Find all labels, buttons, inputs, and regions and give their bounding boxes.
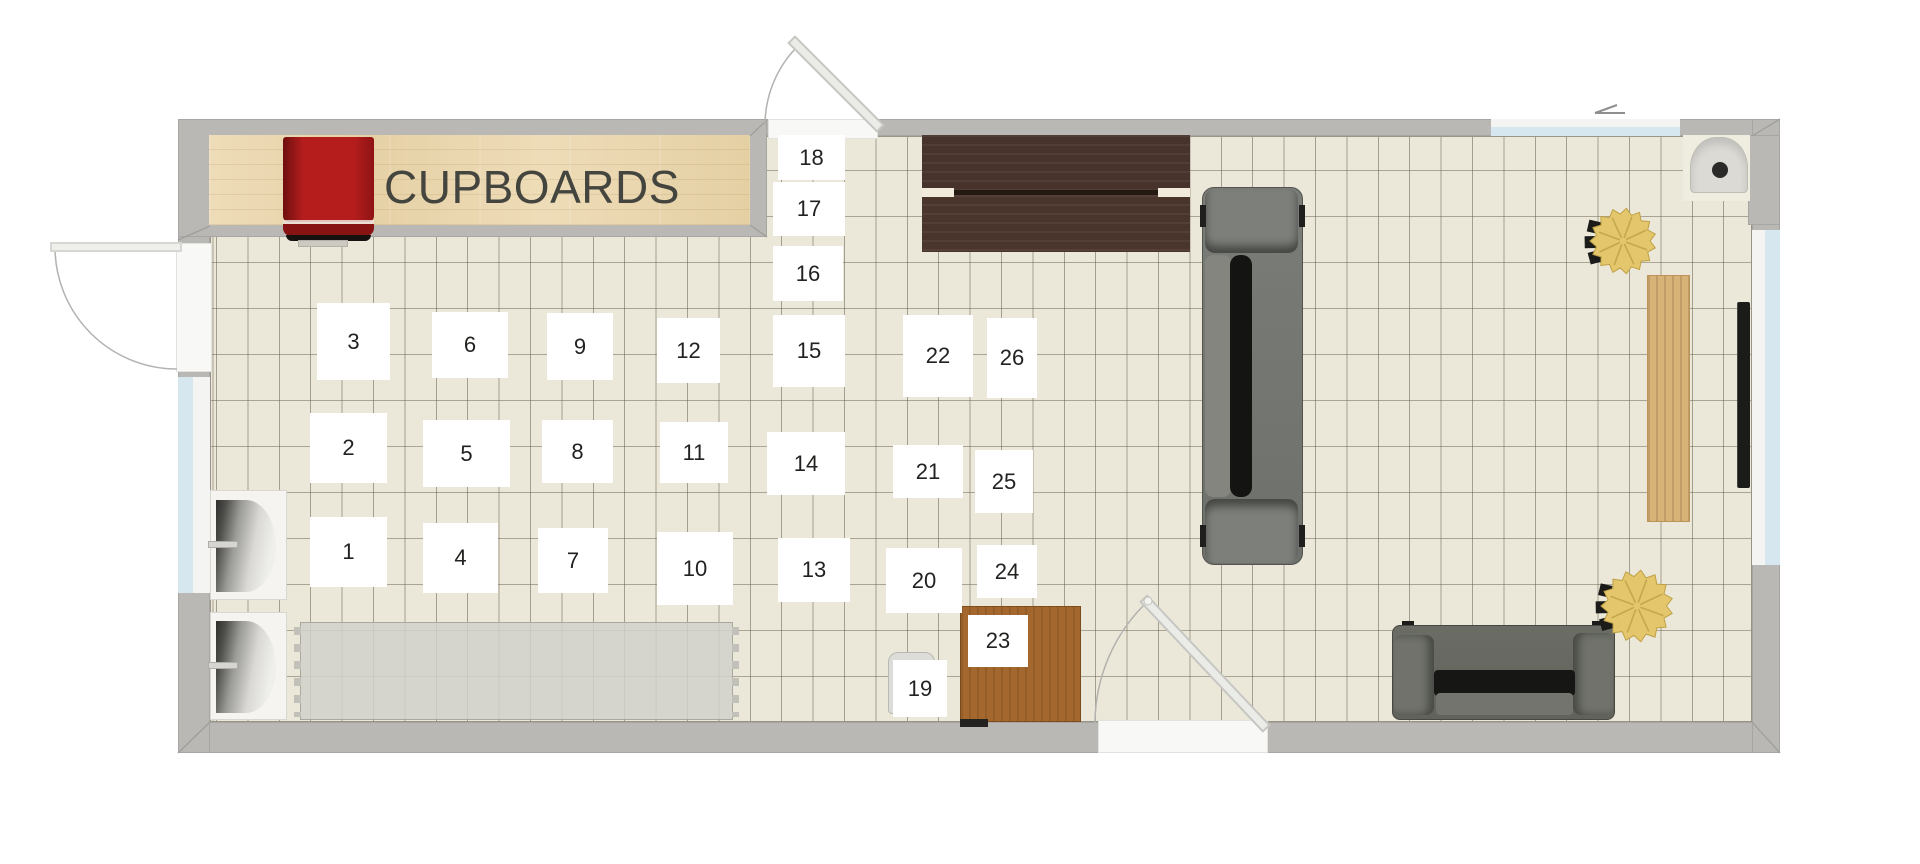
position-marker-26[interactable]: 26: [987, 318, 1037, 398]
position-marker-8[interactable]: 8: [542, 420, 613, 483]
position-marker-12[interactable]: 12: [657, 318, 720, 383]
markers-layer: 1234567891011121314151617181920212223242…: [0, 0, 1920, 864]
position-marker-20[interactable]: 20: [886, 548, 962, 613]
position-marker-14[interactable]: 14: [767, 432, 845, 495]
position-marker-15[interactable]: 15: [773, 315, 845, 387]
position-marker-3[interactable]: 3: [317, 303, 390, 380]
position-marker-11[interactable]: 11: [660, 422, 728, 483]
floor-plan: CUPBOARDS: [0, 0, 1920, 864]
position-marker-21[interactable]: 21: [893, 445, 963, 498]
position-marker-10[interactable]: 10: [657, 532, 733, 605]
position-marker-25[interactable]: 25: [975, 450, 1033, 513]
position-marker-1[interactable]: 1: [310, 517, 387, 587]
position-marker-17[interactable]: 17: [773, 182, 845, 236]
position-marker-24[interactable]: 24: [977, 545, 1037, 598]
position-marker-5[interactable]: 5: [423, 420, 510, 487]
position-marker-9[interactable]: 9: [547, 313, 613, 380]
position-marker-18[interactable]: 18: [778, 135, 845, 180]
position-marker-22[interactable]: 22: [903, 315, 973, 397]
position-marker-16[interactable]: 16: [773, 246, 843, 301]
position-marker-6[interactable]: 6: [432, 312, 508, 378]
position-marker-19[interactable]: 19: [893, 660, 947, 717]
position-marker-23[interactable]: 23: [968, 615, 1028, 667]
position-marker-13[interactable]: 13: [778, 538, 850, 602]
position-marker-7[interactable]: 7: [538, 528, 608, 593]
position-marker-2[interactable]: 2: [310, 413, 387, 483]
position-marker-4[interactable]: 4: [423, 523, 498, 593]
